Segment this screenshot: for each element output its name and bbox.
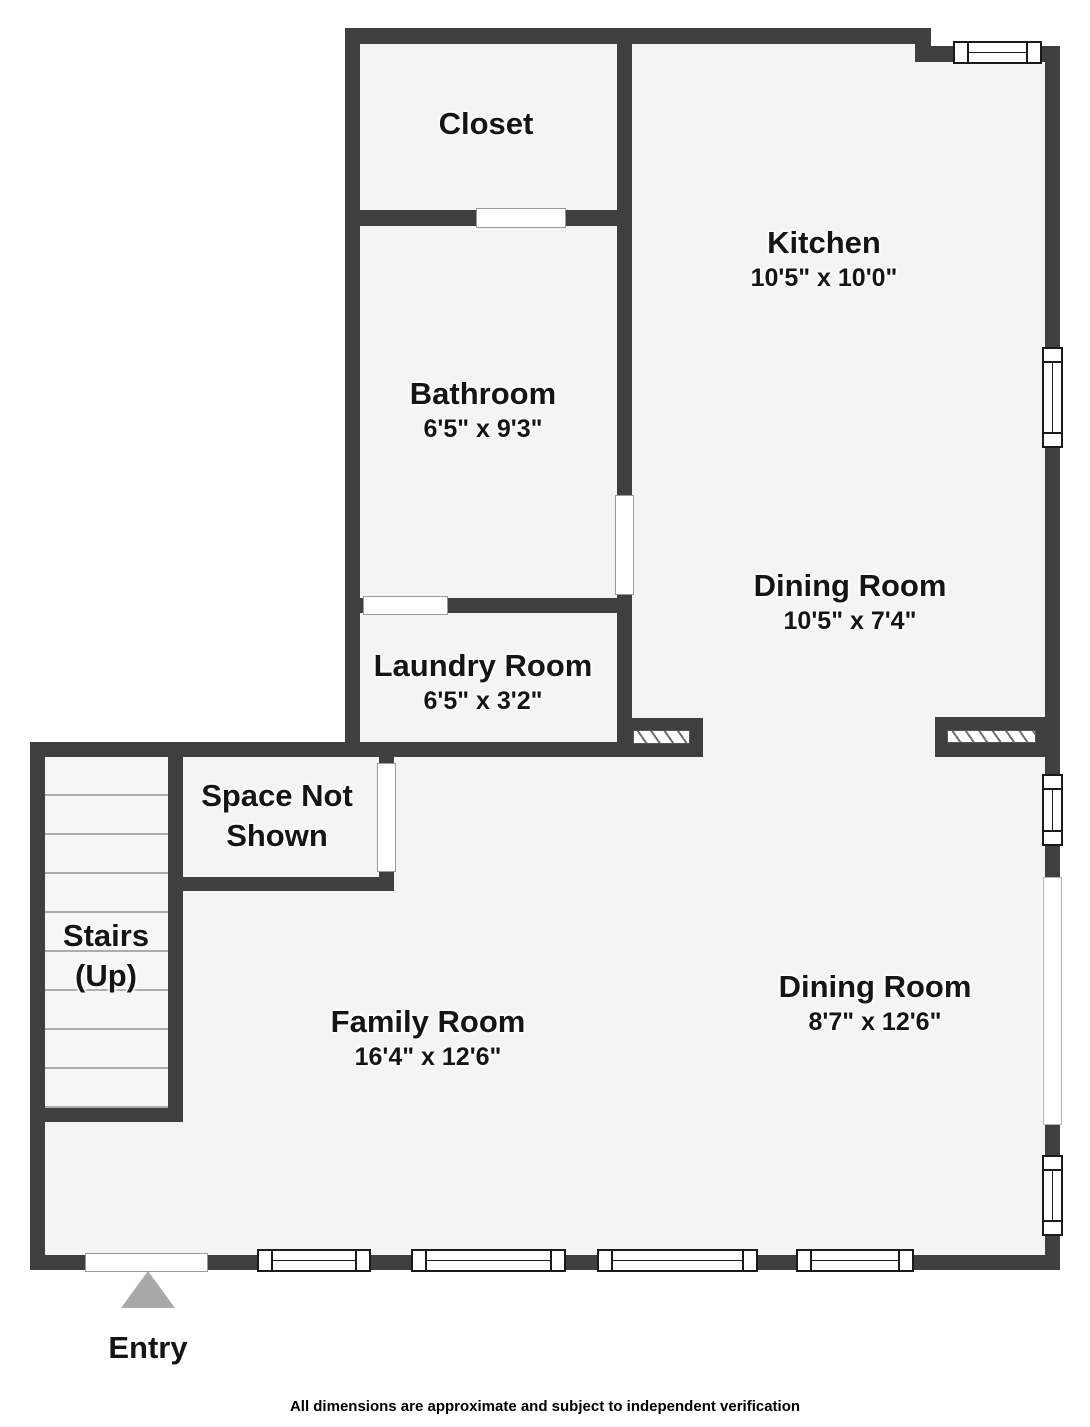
room-label-family-room: Family Room 16'4" x 12'6" bbox=[308, 1004, 548, 1072]
right-window-2 bbox=[1042, 774, 1063, 846]
entry-arrow-icon bbox=[121, 1271, 175, 1308]
entry-label: Entry bbox=[68, 1330, 228, 1366]
room-label-dining-room-lower: Dining Room 8'7" x 12'6" bbox=[755, 969, 995, 1037]
wall-lower-section-top bbox=[30, 742, 703, 757]
bottom-window-4 bbox=[796, 1249, 914, 1272]
room-label-dining-room-upper: Dining Room 10'5" x 7'4" bbox=[730, 568, 970, 636]
room-dimensions: 8'7" x 12'6" bbox=[755, 1007, 995, 1037]
passage-hatch-left bbox=[633, 730, 690, 744]
room-label-stairs: Stairs (Up) bbox=[46, 916, 166, 996]
wall-space-not-shown-bottom bbox=[168, 877, 394, 891]
bottom-window-1 bbox=[257, 1249, 371, 1272]
room-label-closet: Closet bbox=[386, 106, 586, 142]
entry-door-opening bbox=[85, 1253, 208, 1272]
room-name: Dining Room bbox=[730, 568, 970, 604]
space-not-shown-door-opening bbox=[377, 763, 396, 872]
room-name: Space Not Shown bbox=[177, 776, 377, 856]
room-name: Family Room bbox=[308, 1004, 548, 1040]
closet-door-opening bbox=[476, 208, 566, 228]
bottom-window-3 bbox=[597, 1249, 758, 1272]
room-name: Closet bbox=[386, 106, 586, 142]
room-name: Dining Room bbox=[755, 969, 995, 1005]
wall-top-upper bbox=[345, 28, 931, 44]
room-label-laundry-room: Laundry Room 6'5" x 3'2" bbox=[343, 648, 623, 716]
room-dimensions: 10'5" x 7'4" bbox=[730, 606, 970, 636]
room-dimensions: 10'5" x 10'0" bbox=[704, 263, 944, 293]
room-name: Laundry Room bbox=[343, 648, 623, 684]
wall-left-exterior bbox=[30, 742, 45, 1270]
laundry-door-opening bbox=[363, 596, 448, 615]
room-dimensions: 16'4" x 12'6" bbox=[308, 1042, 548, 1072]
passage-hatch-right bbox=[947, 730, 1036, 743]
right-window-3 bbox=[1042, 1155, 1063, 1236]
bottom-window-2 bbox=[411, 1249, 566, 1272]
room-label-kitchen: Kitchen 10'5" x 10'0" bbox=[704, 225, 944, 293]
disclaimer-text: All dimensions are approximate and subje… bbox=[0, 1398, 1090, 1415]
room-name: Stairs (Up) bbox=[46, 916, 166, 996]
entry-text: Entry bbox=[68, 1330, 228, 1366]
room-dimensions: 6'5" x 9'3" bbox=[363, 414, 603, 444]
right-wall-opening bbox=[1043, 877, 1062, 1125]
room-label-bathroom: Bathroom 6'5" x 9'3" bbox=[363, 376, 603, 444]
kitchen-window bbox=[953, 41, 1042, 64]
room-label-space-not-shown: Space Not Shown bbox=[177, 776, 377, 856]
room-name: Kitchen bbox=[704, 225, 944, 261]
room-dimensions: 6'5" x 3'2" bbox=[343, 686, 623, 716]
wall-stairs-bottom bbox=[30, 1108, 183, 1122]
bathroom-door-opening bbox=[615, 495, 634, 595]
room-name: Bathroom bbox=[363, 376, 603, 412]
right-window-1 bbox=[1042, 347, 1063, 448]
floor-plan: Closet Kitchen 10'5" x 10'0" Bathroom 6'… bbox=[0, 0, 1090, 1427]
